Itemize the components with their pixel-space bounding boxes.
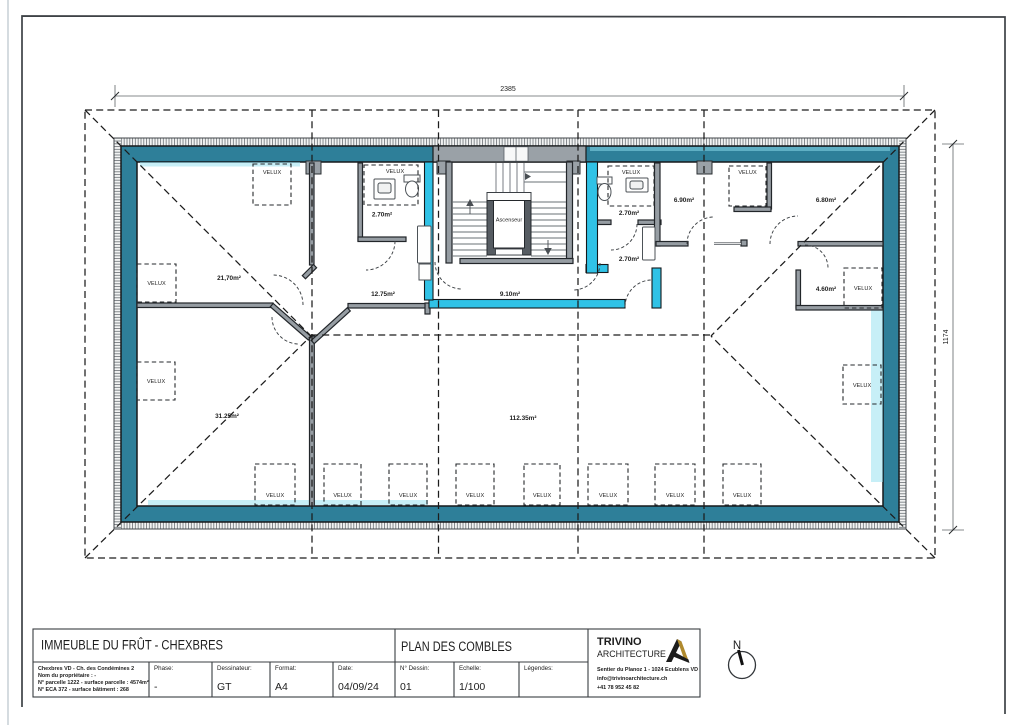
svg-text:VELUX: VELUX <box>399 493 418 499</box>
svg-text:1174: 1174 <box>943 329 950 344</box>
svg-text:Sentier du Planoz 1 - 1024 Ecu: Sentier du Planoz 1 - 1024 Ecublens VD <box>597 667 698 673</box>
svg-text:Ascenseur: Ascenseur <box>496 218 523 224</box>
svg-text:VELUX: VELUX <box>263 170 282 176</box>
svg-text:1/100: 1/100 <box>459 681 485 693</box>
svg-text:ARCHITECTURE: ARCHITECTURE <box>597 649 666 659</box>
svg-text:VELUX: VELUX <box>533 493 552 499</box>
svg-text:N° ECA 372 - surface bâtiment: N° ECA 372 - surface bâtiment : 268 <box>38 687 129 693</box>
svg-text:Chexbres VD - Ch. des Condémin: Chexbres VD - Ch. des Condémines 2 <box>38 666 134 672</box>
svg-text:6.80m²: 6.80m² <box>816 197 836 204</box>
svg-text:Dessinateur:: Dessinateur: <box>217 665 252 672</box>
svg-text:VELUX: VELUX <box>738 170 757 176</box>
svg-text:N° Dessin:: N° Dessin: <box>400 665 430 672</box>
svg-text:21,70m²: 21,70m² <box>217 275 241 282</box>
svg-text:GT: GT <box>217 681 232 693</box>
svg-text:112.35m²: 112.35m² <box>509 415 536 422</box>
svg-text:4.60m²: 4.60m² <box>816 286 836 293</box>
svg-text:VELUX: VELUX <box>466 493 485 499</box>
svg-text:Légendes:: Légendes: <box>524 665 553 672</box>
svg-text:9.10m²: 9.10m² <box>500 291 520 298</box>
svg-text:VELUX: VELUX <box>853 383 872 389</box>
svg-text:TRIVINO: TRIVINO <box>597 636 642 648</box>
svg-text:VELUX: VELUX <box>147 281 166 287</box>
svg-text:2.70m²: 2.70m² <box>619 210 639 217</box>
svg-text:VELUX: VELUX <box>733 493 752 499</box>
svg-text:Nom du propriétaire : -: Nom du propriétaire : - <box>38 673 96 679</box>
svg-text:Date:: Date: <box>338 665 353 672</box>
svg-text:A4: A4 <box>275 681 288 693</box>
svg-text:N° parcelle 1222 - surface par: N° parcelle 1222 - surface parcelle : 45… <box>38 680 149 686</box>
svg-text:12.75m²: 12.75m² <box>371 291 395 298</box>
svg-text:31.25m²: 31.25m² <box>215 413 239 420</box>
svg-text:Format:: Format: <box>275 665 297 672</box>
svg-text:2385: 2385 <box>500 86 516 93</box>
svg-text:+41 78 952 45 82: +41 78 952 45 82 <box>597 685 639 691</box>
svg-text:VELUX: VELUX <box>333 493 352 499</box>
svg-text:2.70m²: 2.70m² <box>619 256 639 263</box>
svg-text:IMMEUBLE DU FRÛT - CHEXBRES: IMMEUBLE DU FRÛT - CHEXBRES <box>41 638 223 653</box>
svg-text:04/09/24: 04/09/24 <box>338 681 379 693</box>
svg-text:VELUX: VELUX <box>147 379 166 385</box>
svg-text:Phase:: Phase: <box>154 665 174 672</box>
svg-text:PLAN DES COMBLES: PLAN DES COMBLES <box>401 639 512 654</box>
svg-text:Echelle:: Echelle: <box>459 665 481 672</box>
svg-text:VELUX: VELUX <box>266 493 285 499</box>
svg-text:-: - <box>154 681 158 693</box>
svg-text:info@trivinoarchitecture.ch: info@trivinoarchitecture.ch <box>597 676 667 682</box>
svg-text:VELUX: VELUX <box>854 286 873 292</box>
svg-text:VELUX: VELUX <box>622 170 641 176</box>
svg-text:VELUX: VELUX <box>599 493 618 499</box>
svg-text:2.70m²: 2.70m² <box>372 212 392 219</box>
svg-text:VELUX: VELUX <box>666 493 685 499</box>
svg-text:6.90m²: 6.90m² <box>674 197 694 204</box>
svg-text:01: 01 <box>400 681 412 693</box>
svg-text:VELUX: VELUX <box>386 169 405 175</box>
